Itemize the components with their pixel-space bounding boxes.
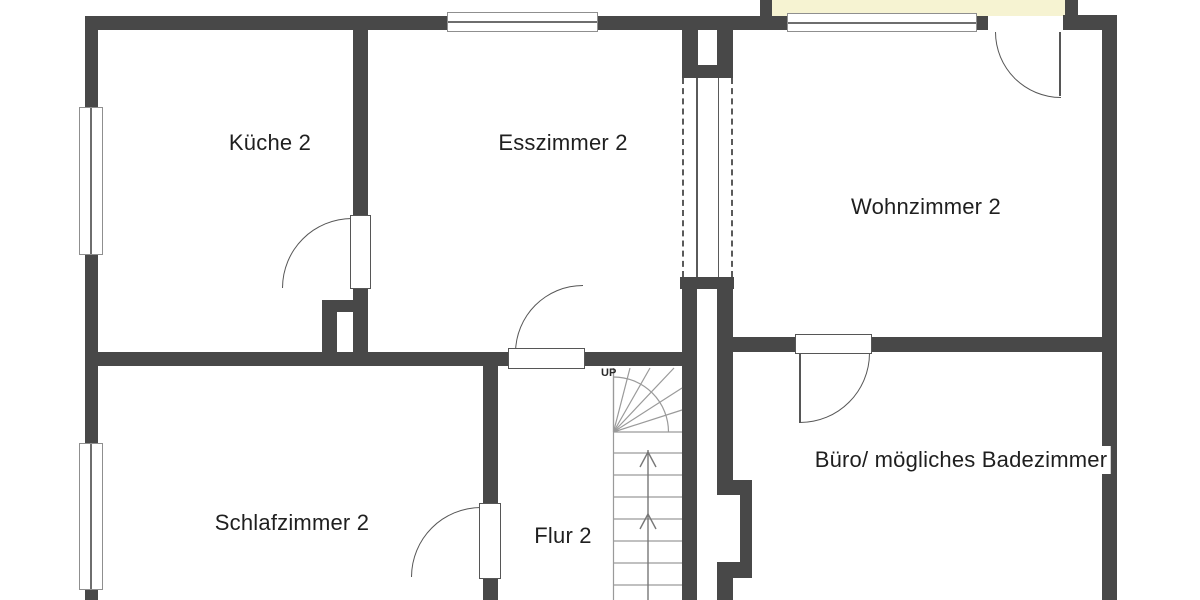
balcony-wall-left [760,0,772,16]
wohnzimmer-buero-wall-west [733,337,797,352]
window-esszimmer-north [447,12,598,32]
chimney-shaft-line-right [718,78,720,277]
top-wall-corner [1063,15,1117,30]
right-wall [1102,30,1117,600]
staircase [600,360,700,600]
window-pane-line [90,444,92,589]
buero-niche-bottom [717,562,752,578]
stair-up-label: UP [601,367,616,379]
wohnzimmer-buero-wall-east [870,337,1117,352]
window-kueche-west [79,107,103,255]
left-wall-middle [85,255,98,443]
top-wall-pier [977,16,988,30]
left-wall-upper [85,16,98,107]
schlafzimmer-flur-wall-upper [483,366,498,505]
window-pane-line [90,108,92,254]
buero-door-swing [800,353,870,423]
window-pane-line [448,21,597,23]
buero-door-opening [795,334,872,354]
room-label-schlafzimmer: Schlafzimmer 2 [215,510,369,536]
room-label-kueche: Küche 2 [229,130,311,156]
buero-niche-top [717,480,752,495]
balkon-door-leaf [1059,32,1061,96]
schlafzimmer-flur-wall-lower [483,577,498,600]
stair-up-arrow [640,450,656,600]
window-schlafzimmer-west [79,443,103,590]
top-wall-west [85,16,447,30]
chimney-bottom-cap [680,277,734,289]
kueche-chimney-flue [337,312,353,352]
esszimmer-door-leaf [508,348,585,369]
room-label-buero: Büro/ mögliches Badezimmer [812,446,1111,474]
chimney-shaft [682,78,733,277]
balkon-door-swing [995,32,1061,98]
chimney-shaft-line-left [696,78,698,277]
chimney-top-niche [698,30,717,65]
buero-west-wall-lower [717,578,733,600]
floor-plan: UP Küche 2 Esszimmer 2 Wohnzimmer 2 Schl… [0,0,1200,600]
mid-wall-west [85,352,508,366]
kueche-door-leaf [350,215,371,289]
kueche-door-swing [282,218,352,288]
window-pane-line [788,22,976,24]
room-label-esszimmer: Esszimmer 2 [498,130,627,156]
window-wohnzimmer-north [787,13,977,32]
buero-west-wall-upper [717,289,733,480]
kueche-esszimmer-wall [353,30,368,215]
room-label-wohnzimmer: Wohnzimmer 2 [851,194,1001,220]
schlafzimmer-door-swing [411,507,481,577]
esszimmer-door-swing [515,285,583,353]
schlafzimmer-door-leaf [479,503,501,579]
top-wall-middle [598,16,787,30]
buero-door-leaf [799,353,801,423]
room-label-flur: Flur 2 [534,523,591,549]
left-wall-lower [85,590,98,600]
